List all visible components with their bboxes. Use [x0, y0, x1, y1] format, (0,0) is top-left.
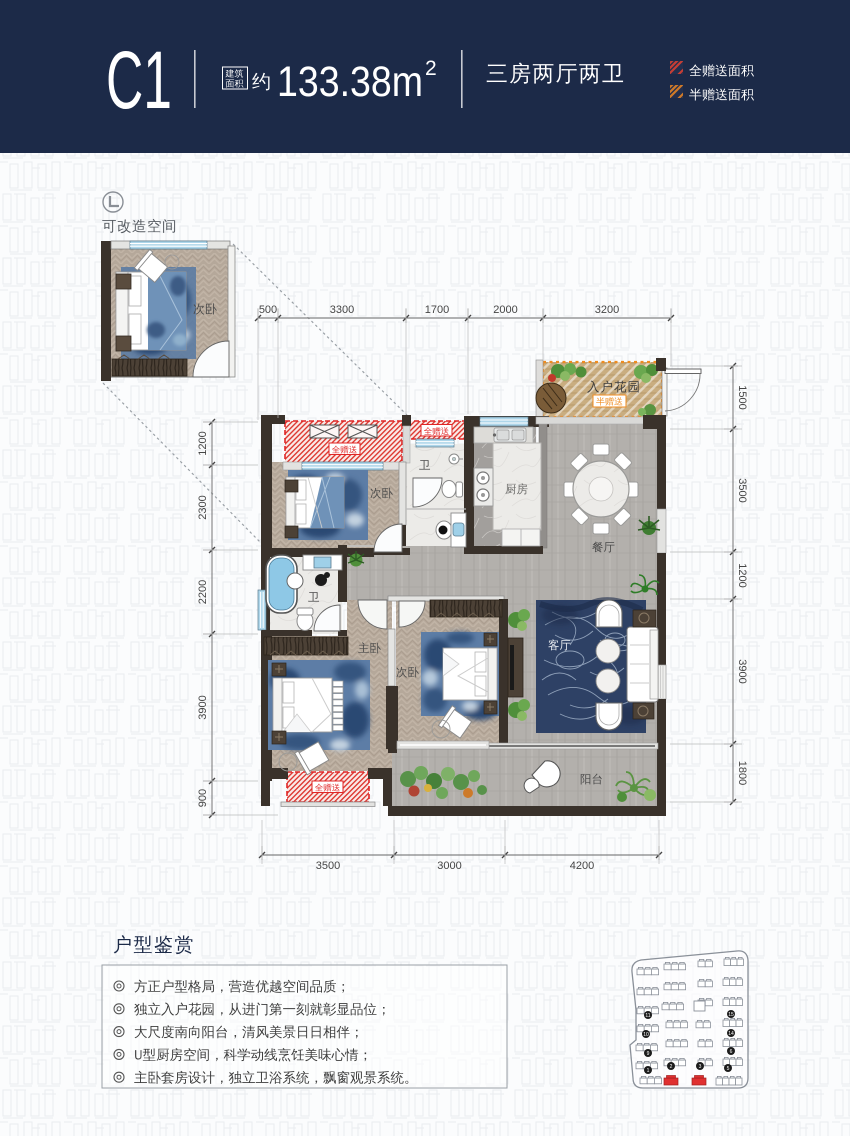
svg-text:2000: 2000 [493, 304, 517, 316]
svg-text:1200: 1200 [197, 431, 209, 455]
svg-text:3500: 3500 [736, 478, 748, 502]
svg-text:3000: 3000 [437, 860, 461, 872]
svg-text:15: 15 [728, 1012, 734, 1018]
svg-text:11: 11 [645, 1013, 650, 1019]
svg-text:2: 2 [670, 1064, 673, 1070]
svg-text:133.38m: 133.38m [277, 58, 423, 106]
svg-text:9: 9 [647, 1051, 650, 1057]
svg-text:900: 900 [197, 789, 209, 807]
svg-text:1200: 1200 [736, 563, 748, 587]
svg-text:3900: 3900 [736, 659, 748, 683]
svg-text:2: 2 [425, 57, 437, 80]
svg-text:14: 14 [728, 1031, 734, 1037]
svg-text:1500: 1500 [736, 385, 748, 409]
svg-text:3: 3 [699, 1064, 702, 1070]
svg-text:1800: 1800 [736, 761, 748, 785]
svg-text:3300: 3300 [330, 304, 354, 316]
svg-text:6: 6 [730, 1049, 733, 1055]
svg-text:4200: 4200 [570, 860, 594, 872]
svg-text:3900: 3900 [197, 695, 209, 719]
svg-text:2300: 2300 [197, 495, 209, 519]
svg-text:C1: C1 [106, 35, 172, 126]
svg-text:500: 500 [259, 304, 277, 316]
svg-text:1700: 1700 [425, 304, 449, 316]
svg-text:2200: 2200 [197, 580, 209, 604]
svg-text:1: 1 [647, 1068, 650, 1074]
svg-text:10: 10 [643, 1032, 649, 1038]
svg-text:3500: 3500 [316, 860, 340, 872]
svg-text:3200: 3200 [595, 304, 619, 316]
svg-text:5: 5 [727, 1066, 730, 1072]
